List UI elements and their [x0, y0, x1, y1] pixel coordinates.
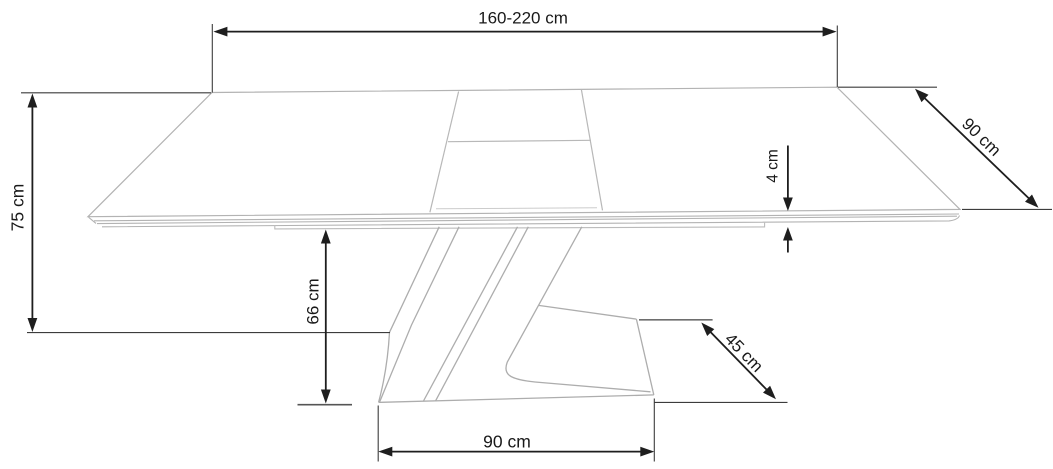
svg-text:75 cm: 75 cm [8, 184, 28, 232]
svg-text:66 cm: 66 cm [304, 278, 323, 324]
svg-text:160-220 cm: 160-220 cm [478, 9, 568, 28]
svg-text:90 cm: 90 cm [483, 432, 531, 452]
svg-text:4 cm: 4 cm [765, 149, 782, 183]
